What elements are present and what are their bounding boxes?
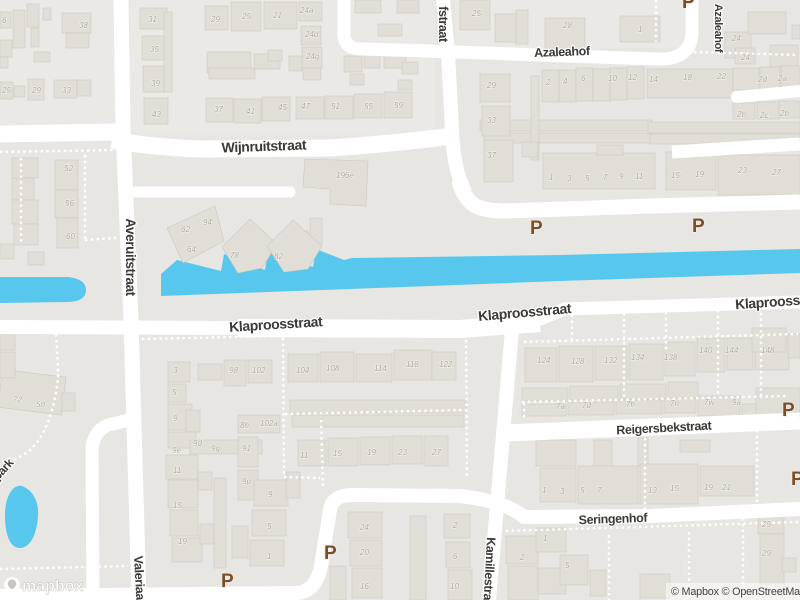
svg-text:2: 2	[452, 521, 458, 530]
svg-text:Averuitstraat: Averuitstraat	[123, 218, 138, 296]
svg-text:Azaleahof: Azaleahof	[534, 44, 591, 60]
svg-text:7d: 7d	[582, 401, 591, 410]
svg-text:94: 94	[203, 218, 212, 227]
svg-text:5: 5	[267, 522, 272, 531]
svg-text:33: 33	[487, 116, 496, 125]
svg-text:11: 11	[173, 466, 181, 475]
svg-text:9: 9	[268, 490, 273, 499]
svg-text:29: 29	[31, 86, 41, 95]
svg-text:mapbox: mapbox	[22, 578, 83, 595]
svg-text:11: 11	[635, 172, 643, 181]
svg-text:39: 39	[151, 79, 160, 88]
svg-text:5: 5	[580, 486, 585, 495]
svg-text:2: 2	[519, 553, 525, 562]
svg-text:1: 1	[638, 25, 642, 34]
svg-text:6: 6	[581, 74, 586, 83]
svg-text:5: 5	[585, 174, 590, 183]
svg-text:27: 27	[431, 448, 441, 457]
svg-text:15: 15	[670, 484, 679, 493]
svg-text:23: 23	[737, 166, 747, 175]
svg-text:1: 1	[543, 534, 547, 543]
svg-text:8h: 8h	[240, 421, 249, 430]
svg-text:1: 1	[267, 552, 271, 561]
svg-text:2c: 2c	[759, 111, 768, 120]
svg-text:19: 19	[367, 448, 376, 457]
svg-text:23: 23	[397, 448, 407, 457]
svg-text:43: 43	[152, 110, 161, 119]
svg-text:24d: 24d	[304, 30, 319, 39]
svg-text:24g: 24g	[305, 52, 320, 61]
svg-text:15: 15	[671, 171, 680, 180]
svg-text:5: 5	[172, 388, 177, 397]
svg-text:P: P	[682, 0, 695, 13]
svg-text:37: 37	[487, 151, 496, 160]
svg-text:P: P	[221, 571, 234, 592]
svg-text:15: 15	[173, 501, 182, 510]
svg-text:7: 7	[603, 173, 608, 182]
svg-text:19: 19	[178, 537, 187, 546]
svg-text:21: 21	[272, 11, 282, 20]
svg-text:25: 25	[761, 520, 771, 529]
svg-text:Seringenhof: Seringenhof	[578, 511, 648, 527]
svg-text:47: 47	[301, 102, 310, 111]
svg-text:134: 134	[631, 353, 645, 362]
svg-text:78: 78	[230, 251, 239, 260]
svg-text:7n: 7n	[670, 399, 679, 408]
svg-text:38: 38	[79, 21, 88, 30]
svg-text:196e: 196e	[336, 171, 354, 180]
svg-text:138: 138	[664, 353, 678, 362]
svg-text:P: P	[692, 216, 705, 237]
svg-text:140: 140	[699, 346, 713, 355]
svg-text:52: 52	[64, 164, 73, 173]
svg-text:2b: 2b	[736, 110, 746, 119]
svg-text:9: 9	[173, 414, 178, 423]
svg-text:124: 124	[537, 356, 551, 365]
svg-text:Wijnruitstraat: Wijnruitstraat	[221, 137, 307, 156]
svg-text:25: 25	[241, 12, 251, 21]
svg-text:1: 1	[549, 173, 553, 182]
svg-text:24: 24	[731, 34, 741, 43]
svg-text:91: 91	[242, 444, 251, 453]
svg-text:29: 29	[486, 81, 496, 90]
svg-text:P: P	[791, 469, 800, 490]
svg-text:3: 3	[560, 487, 565, 496]
svg-text:104: 104	[296, 366, 310, 375]
svg-text:56: 56	[65, 199, 74, 208]
svg-text:7a: 7a	[556, 402, 565, 411]
svg-text:82: 82	[274, 252, 283, 261]
svg-text:19: 19	[695, 170, 704, 179]
svg-text:fstraat: fstraat	[436, 6, 450, 43]
svg-text:12: 12	[628, 73, 637, 82]
svg-text:3: 3	[567, 174, 572, 183]
svg-text:72: 72	[12, 395, 22, 405]
svg-text:5: 5	[565, 561, 570, 570]
svg-text:122: 122	[439, 360, 453, 369]
svg-text:9d: 9d	[193, 439, 202, 448]
svg-text:64: 64	[187, 245, 196, 254]
svg-text:7h: 7h	[626, 400, 635, 409]
svg-text:118: 118	[406, 360, 419, 369]
svg-text:144: 144	[725, 346, 739, 355]
svg-text:18: 18	[683, 73, 692, 82]
svg-text:9a: 9a	[732, 398, 741, 407]
svg-text:62: 62	[181, 225, 190, 234]
svg-text:128: 128	[571, 357, 585, 366]
svg-text:1: 1	[542, 486, 546, 495]
svg-text:9p: 9p	[242, 477, 251, 486]
svg-text:15: 15	[333, 449, 342, 458]
svg-text:59: 59	[394, 101, 403, 110]
svg-text:24a: 24a	[299, 6, 314, 15]
svg-text:25: 25	[471, 9, 481, 18]
svg-text:45: 45	[278, 103, 287, 112]
svg-text:2a: 2a	[777, 74, 787, 83]
svg-text:P: P	[782, 400, 795, 421]
svg-text:P: P	[324, 543, 337, 564]
svg-text:6: 6	[2, 16, 7, 25]
svg-text:3: 3	[173, 366, 178, 375]
svg-text:Azaleahof: Azaleahof	[712, 4, 724, 53]
svg-text:22: 22	[716, 72, 726, 81]
svg-text:60: 60	[66, 232, 75, 241]
svg-text:© Mapbox © OpenStreetMap: © Mapbox © OpenStreetMap	[671, 586, 800, 598]
svg-text:P: P	[530, 218, 543, 239]
svg-text:29: 29	[210, 15, 220, 24]
svg-text:7: 7	[597, 486, 602, 495]
svg-text:108: 108	[326, 364, 340, 373]
svg-text:132: 132	[604, 356, 618, 365]
svg-text:51: 51	[331, 102, 340, 111]
svg-text:7w: 7w	[704, 398, 715, 407]
svg-text:20: 20	[359, 548, 369, 557]
svg-text:13: 13	[648, 486, 657, 495]
svg-text:37: 37	[214, 105, 223, 114]
svg-text:25: 25	[1, 86, 11, 95]
svg-text:4: 4	[563, 77, 568, 86]
svg-text:19: 19	[704, 483, 713, 492]
svg-text:41: 41	[246, 107, 255, 116]
svg-text:29: 29	[761, 549, 771, 558]
svg-text:2: 2	[545, 78, 551, 87]
svg-text:33: 33	[62, 86, 71, 95]
svg-text:9e: 9e	[172, 446, 181, 455]
svg-text:148: 148	[761, 346, 775, 355]
svg-text:35: 35	[150, 45, 159, 54]
svg-text:6: 6	[453, 552, 458, 561]
svg-text:2b: 2b	[779, 109, 789, 118]
svg-text:14: 14	[649, 75, 658, 84]
svg-text:98: 98	[229, 366, 238, 375]
svg-text:16: 16	[360, 582, 369, 591]
svg-text:28: 28	[562, 21, 572, 30]
svg-text:10: 10	[608, 74, 617, 83]
svg-text:50: 50	[35, 400, 45, 410]
svg-text:10: 10	[450, 582, 459, 591]
svg-text:21: 21	[721, 483, 731, 492]
svg-text:2d: 2d	[757, 75, 767, 84]
svg-text:9g: 9g	[211, 444, 220, 453]
svg-text:27: 27	[771, 168, 781, 177]
svg-text:55: 55	[364, 102, 373, 111]
svg-text:31: 31	[148, 15, 157, 24]
svg-text:9: 9	[619, 172, 624, 181]
svg-text:24: 24	[359, 523, 369, 532]
svg-text:102a: 102a	[260, 419, 278, 428]
svg-text:102: 102	[252, 366, 266, 375]
svg-text:114: 114	[374, 364, 387, 373]
svg-text:11: 11	[300, 451, 308, 460]
svg-text:24: 24	[740, 53, 750, 62]
